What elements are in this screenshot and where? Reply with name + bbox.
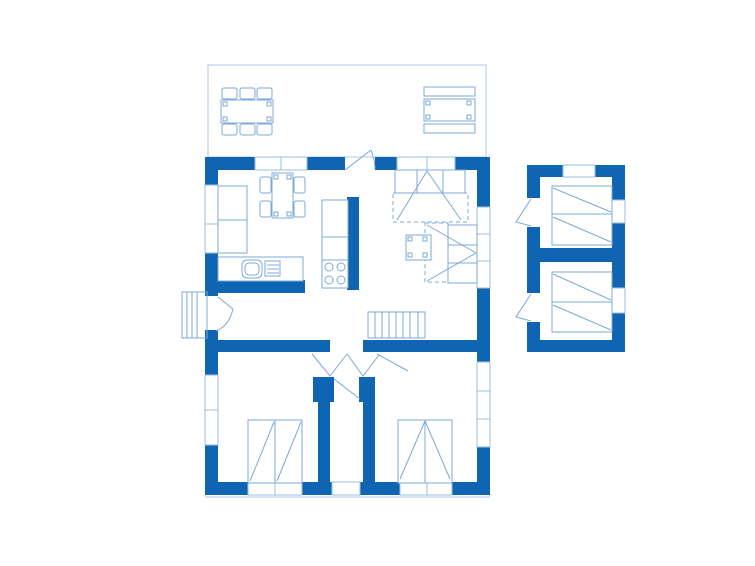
annex-bed-north	[552, 186, 612, 245]
bed-southwest	[248, 420, 302, 483]
kitchen-sink-counter	[218, 257, 303, 281]
kitchen-table-chairs	[260, 173, 305, 218]
terrace-door	[345, 150, 375, 170]
sofa-bed-east	[425, 223, 477, 283]
kitchen-stove-unit	[322, 200, 348, 288]
bed-southeast	[398, 420, 452, 483]
floor-plan-canvas	[0, 0, 755, 566]
entry-steps	[182, 292, 207, 338]
entrance-door	[216, 297, 233, 331]
annex-bed-south	[552, 272, 612, 332]
terrace-bench-table	[424, 87, 475, 133]
sofa-bed-north	[393, 170, 468, 222]
kitchen-counter	[218, 186, 247, 253]
floor-plan	[0, 0, 755, 566]
staircase	[368, 312, 425, 338]
coffee-table	[406, 235, 431, 260]
terrace-dining-table	[221, 88, 273, 135]
